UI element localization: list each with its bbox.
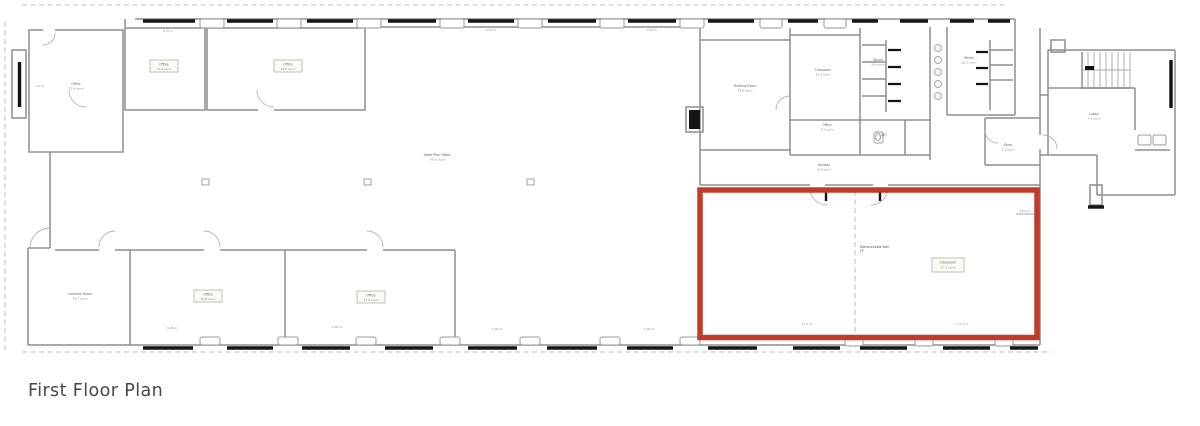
demountable-wall-tag: FF: [860, 249, 864, 253]
room-label: Office: [283, 63, 292, 67]
room-label: Meeting Room: [734, 84, 757, 88]
dimension: 17.1 m: [958, 322, 969, 326]
dimension: 4.70 m: [163, 29, 174, 33]
site-boundary-dashed: [5, 5, 1052, 352]
room-label: Office: [822, 123, 831, 127]
dimension: 17.1 m: [802, 322, 813, 326]
room-area: 18.6 sq m: [281, 67, 296, 71]
fixtures: [874, 45, 1166, 145]
room-label: Store: [1004, 143, 1012, 147]
floor-plan-drawing: Office 21.4 sq m 3.2 m Office 13.2 sq m …: [0, 0, 1200, 426]
room-area: 7.4 sq m: [1087, 117, 1100, 121]
room-side-dim: 3.2 m: [36, 84, 45, 88]
room-area: 15.2 sq m: [816, 73, 831, 77]
room-area: 21.4 sq m: [69, 87, 84, 91]
plan-title: First Floor Plan: [28, 381, 163, 401]
dimension: 3.95 m: [332, 325, 343, 329]
building-walls: [12, 19, 1175, 345]
columns: [202, 179, 534, 185]
dimension: 3.95 m: [644, 327, 655, 331]
room-label: Classroom: [815, 68, 832, 72]
room-area: 17.5 sq m: [364, 298, 379, 302]
room-label: Office: [366, 294, 375, 298]
room-label: Hallway: [818, 163, 831, 167]
room-label: Common Room: [68, 292, 92, 296]
room-label: Toilets: [963, 56, 974, 60]
open-plan-label: Open Plan Office: [424, 153, 451, 157]
floor-plan-page: Office 21.4 sq m 3.2 m Office 13.2 sq m …: [0, 0, 1200, 426]
room-area: 10.2 sq m: [962, 61, 977, 65]
room-area: 4.2 sq m: [1001, 148, 1014, 152]
room-label: Lobby: [1089, 112, 1099, 116]
dimension: 4.70 m: [647, 28, 658, 32]
room-label: Toilets: [872, 58, 883, 62]
room-label: Office: [71, 82, 80, 86]
room-label: WC: [881, 133, 887, 137]
dimension: 12.0 m: [1020, 209, 1031, 213]
room-label: Office: [203, 293, 212, 297]
room-area: 8.9 sq m: [817, 168, 830, 172]
room-area: 6.1 sq m: [820, 128, 833, 132]
dimension: 3.95 m: [167, 326, 178, 330]
open-plan-area: 176.0 sq m: [429, 158, 446, 162]
dimension: 4.70 m: [486, 28, 497, 32]
label-boxes: [150, 60, 1034, 303]
room-area: 24.6 sq m: [738, 89, 753, 93]
room-area: 16.8 sq m: [201, 297, 216, 301]
highlight-rect: [700, 190, 1037, 338]
room-area: 13.2 sq m: [157, 67, 172, 71]
room-area: 9.8 sq m: [871, 63, 884, 67]
highlight-room-area: 57.5 sq m: [941, 266, 956, 270]
demountable-wall-label: Demountable wall: [860, 245, 889, 249]
room-area: 28.3 sq m: [73, 297, 88, 301]
door-gaps: [43, 26, 1043, 253]
room-label: Office: [159, 63, 168, 67]
door-arcs: [30, 33, 1057, 248]
highlight-room-label: Classroom: [940, 261, 957, 265]
dimension: 3.95 m: [492, 327, 503, 331]
